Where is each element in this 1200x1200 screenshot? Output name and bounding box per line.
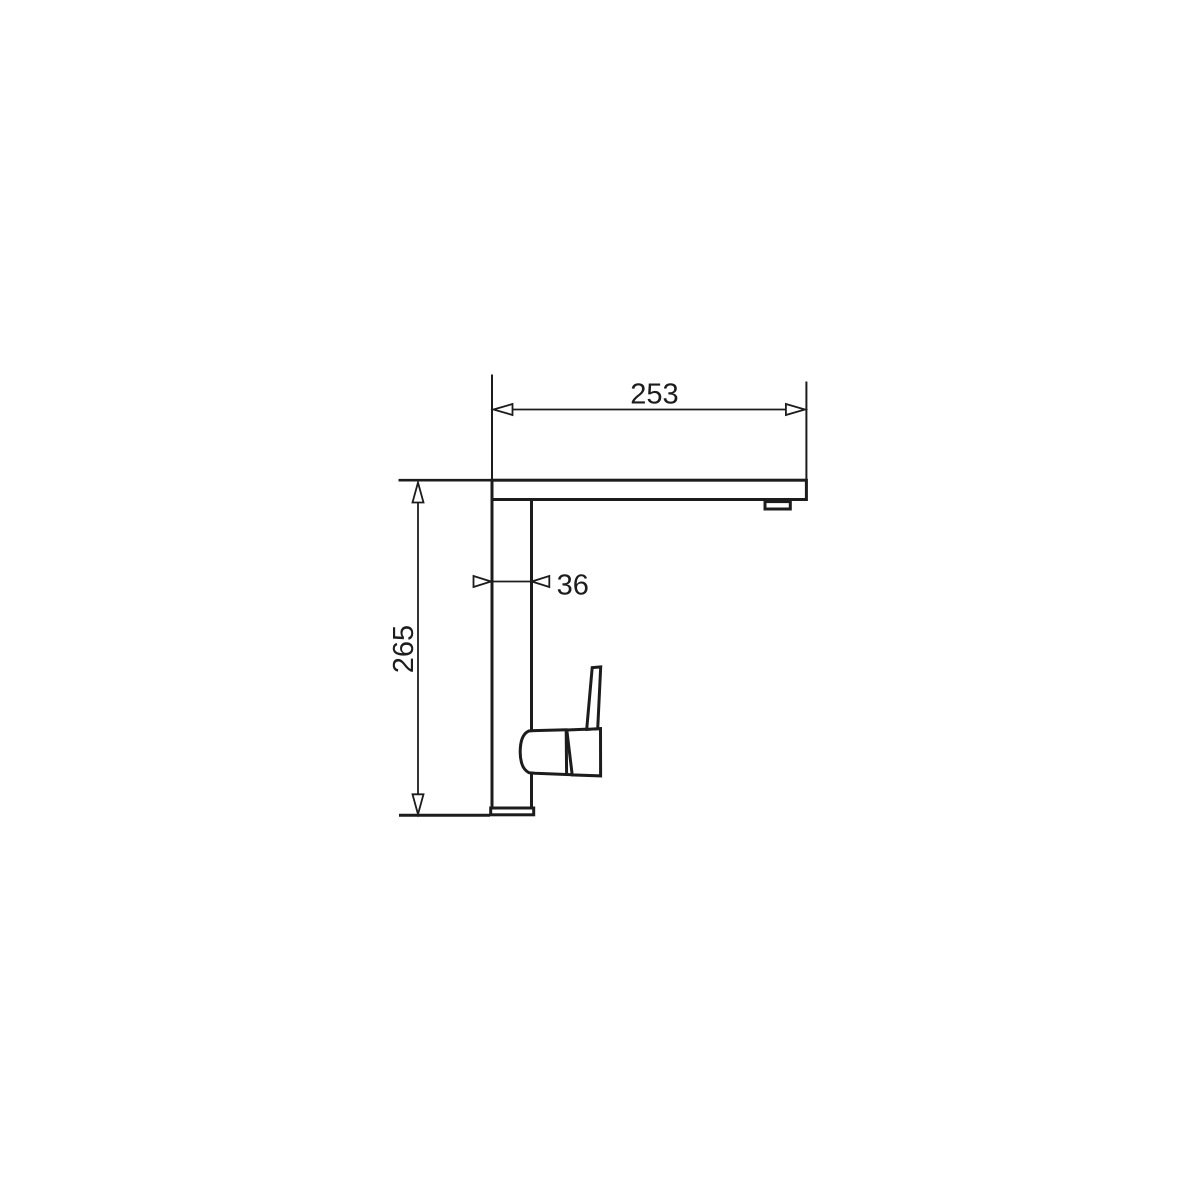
svg-text:265: 265 xyxy=(388,625,420,673)
svg-text:36: 36 xyxy=(557,570,589,602)
svg-text:253: 253 xyxy=(630,379,678,411)
